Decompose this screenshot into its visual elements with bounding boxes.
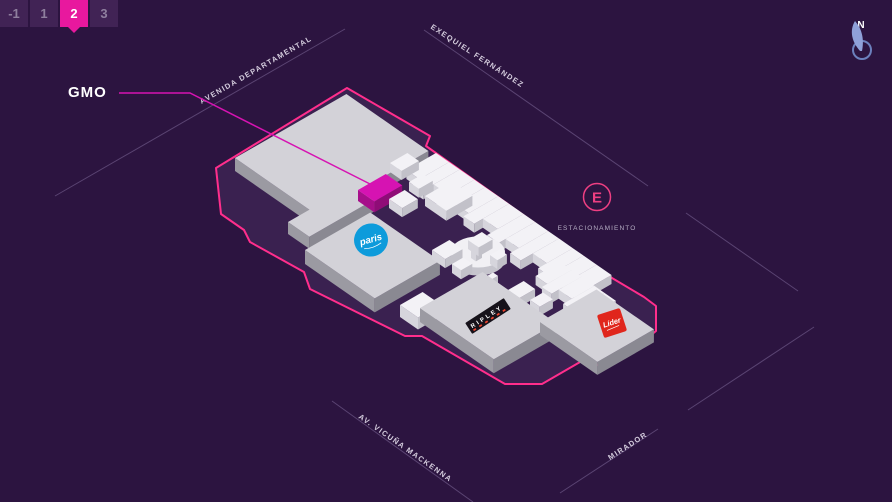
floor-button-1[interactable]: 1 [30,0,58,27]
floor-selector: -1 1 2 3 [0,0,118,27]
street-label-av-vicuna-mackenna: AV. VICUÑA MACKENNA [357,412,454,484]
compass-icon: N [852,20,871,59]
street-label-avenida-departamental: AVENIDA DEPARTAMENTAL [198,34,313,106]
floor-button-3[interactable]: 3 [90,0,118,27]
floor-button-minus1[interactable]: -1 [0,0,28,27]
mall-map: AVENIDA DEPARTAMENTAL EXEQUIEL FERNÁNDEZ… [0,0,892,502]
highlighted-store-label: GMO [68,84,107,101]
parking-label: ESTACIONAMIENTO [558,225,637,232]
street-label-exequiel-fernandez: EXEQUIEL FERNÁNDEZ [429,22,526,89]
svg-text:E: E [592,190,602,207]
mall-kiosk-screen: -1 1 2 3 GMO AVENIDA DEPARTAMENTAL EXEQU… [0,0,892,502]
street-label-mirador: MIRADOR [606,430,649,462]
parking-badge: E ESTACIONAMIENTO [558,184,637,233]
floor-button-2-selected[interactable]: 2 [60,0,88,27]
